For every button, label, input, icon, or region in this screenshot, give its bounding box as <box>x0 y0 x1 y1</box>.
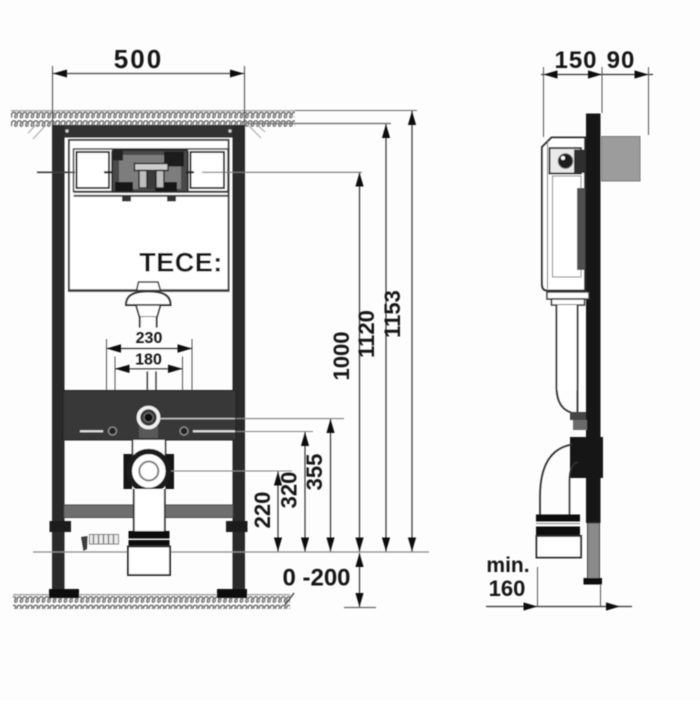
svg-text:160: 160 <box>489 576 526 601</box>
svg-text:1000: 1000 <box>329 332 354 381</box>
svg-text:0 -200: 0 -200 <box>282 565 350 592</box>
svg-text:180: 180 <box>135 352 162 369</box>
svg-text:min.: min. <box>486 554 529 577</box>
svg-text:355: 355 <box>302 454 327 491</box>
svg-text:TECE:: TECE: <box>139 248 223 278</box>
svg-text:1120: 1120 <box>354 310 379 358</box>
svg-text:150: 150 <box>554 47 597 74</box>
svg-text:230: 230 <box>136 330 163 347</box>
svg-text:320: 320 <box>277 472 302 509</box>
svg-text:1153: 1153 <box>380 290 405 338</box>
svg-text:220: 220 <box>250 492 275 529</box>
svg-text:500: 500 <box>114 44 163 74</box>
svg-text:90: 90 <box>607 47 636 74</box>
